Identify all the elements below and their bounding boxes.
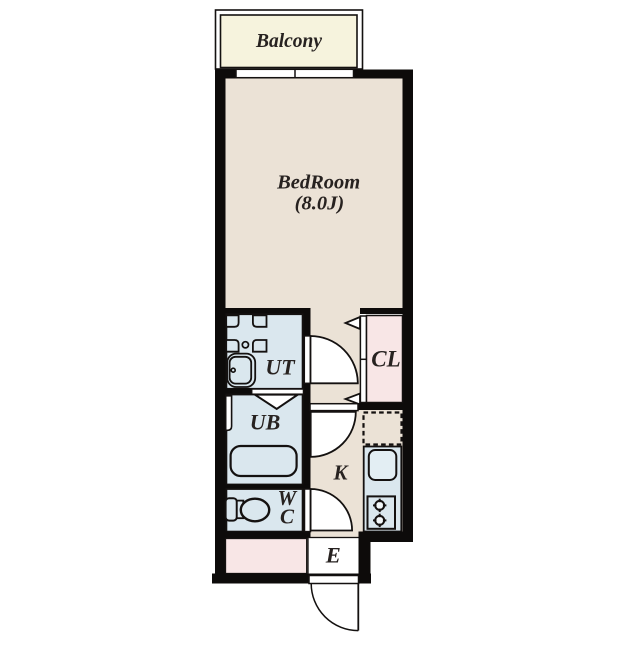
svg-text:BedRoom: BedRoom xyxy=(276,172,360,194)
svg-text:E: E xyxy=(325,543,341,568)
svg-text:UB: UB xyxy=(250,410,281,435)
svg-text:C: C xyxy=(280,504,295,528)
svg-text:UT: UT xyxy=(265,355,296,380)
svg-text:Balcony: Balcony xyxy=(255,31,322,52)
svg-text:(8.0J): (8.0J) xyxy=(295,193,345,215)
svg-text:CL: CL xyxy=(371,347,400,372)
svg-text:K: K xyxy=(332,461,349,485)
